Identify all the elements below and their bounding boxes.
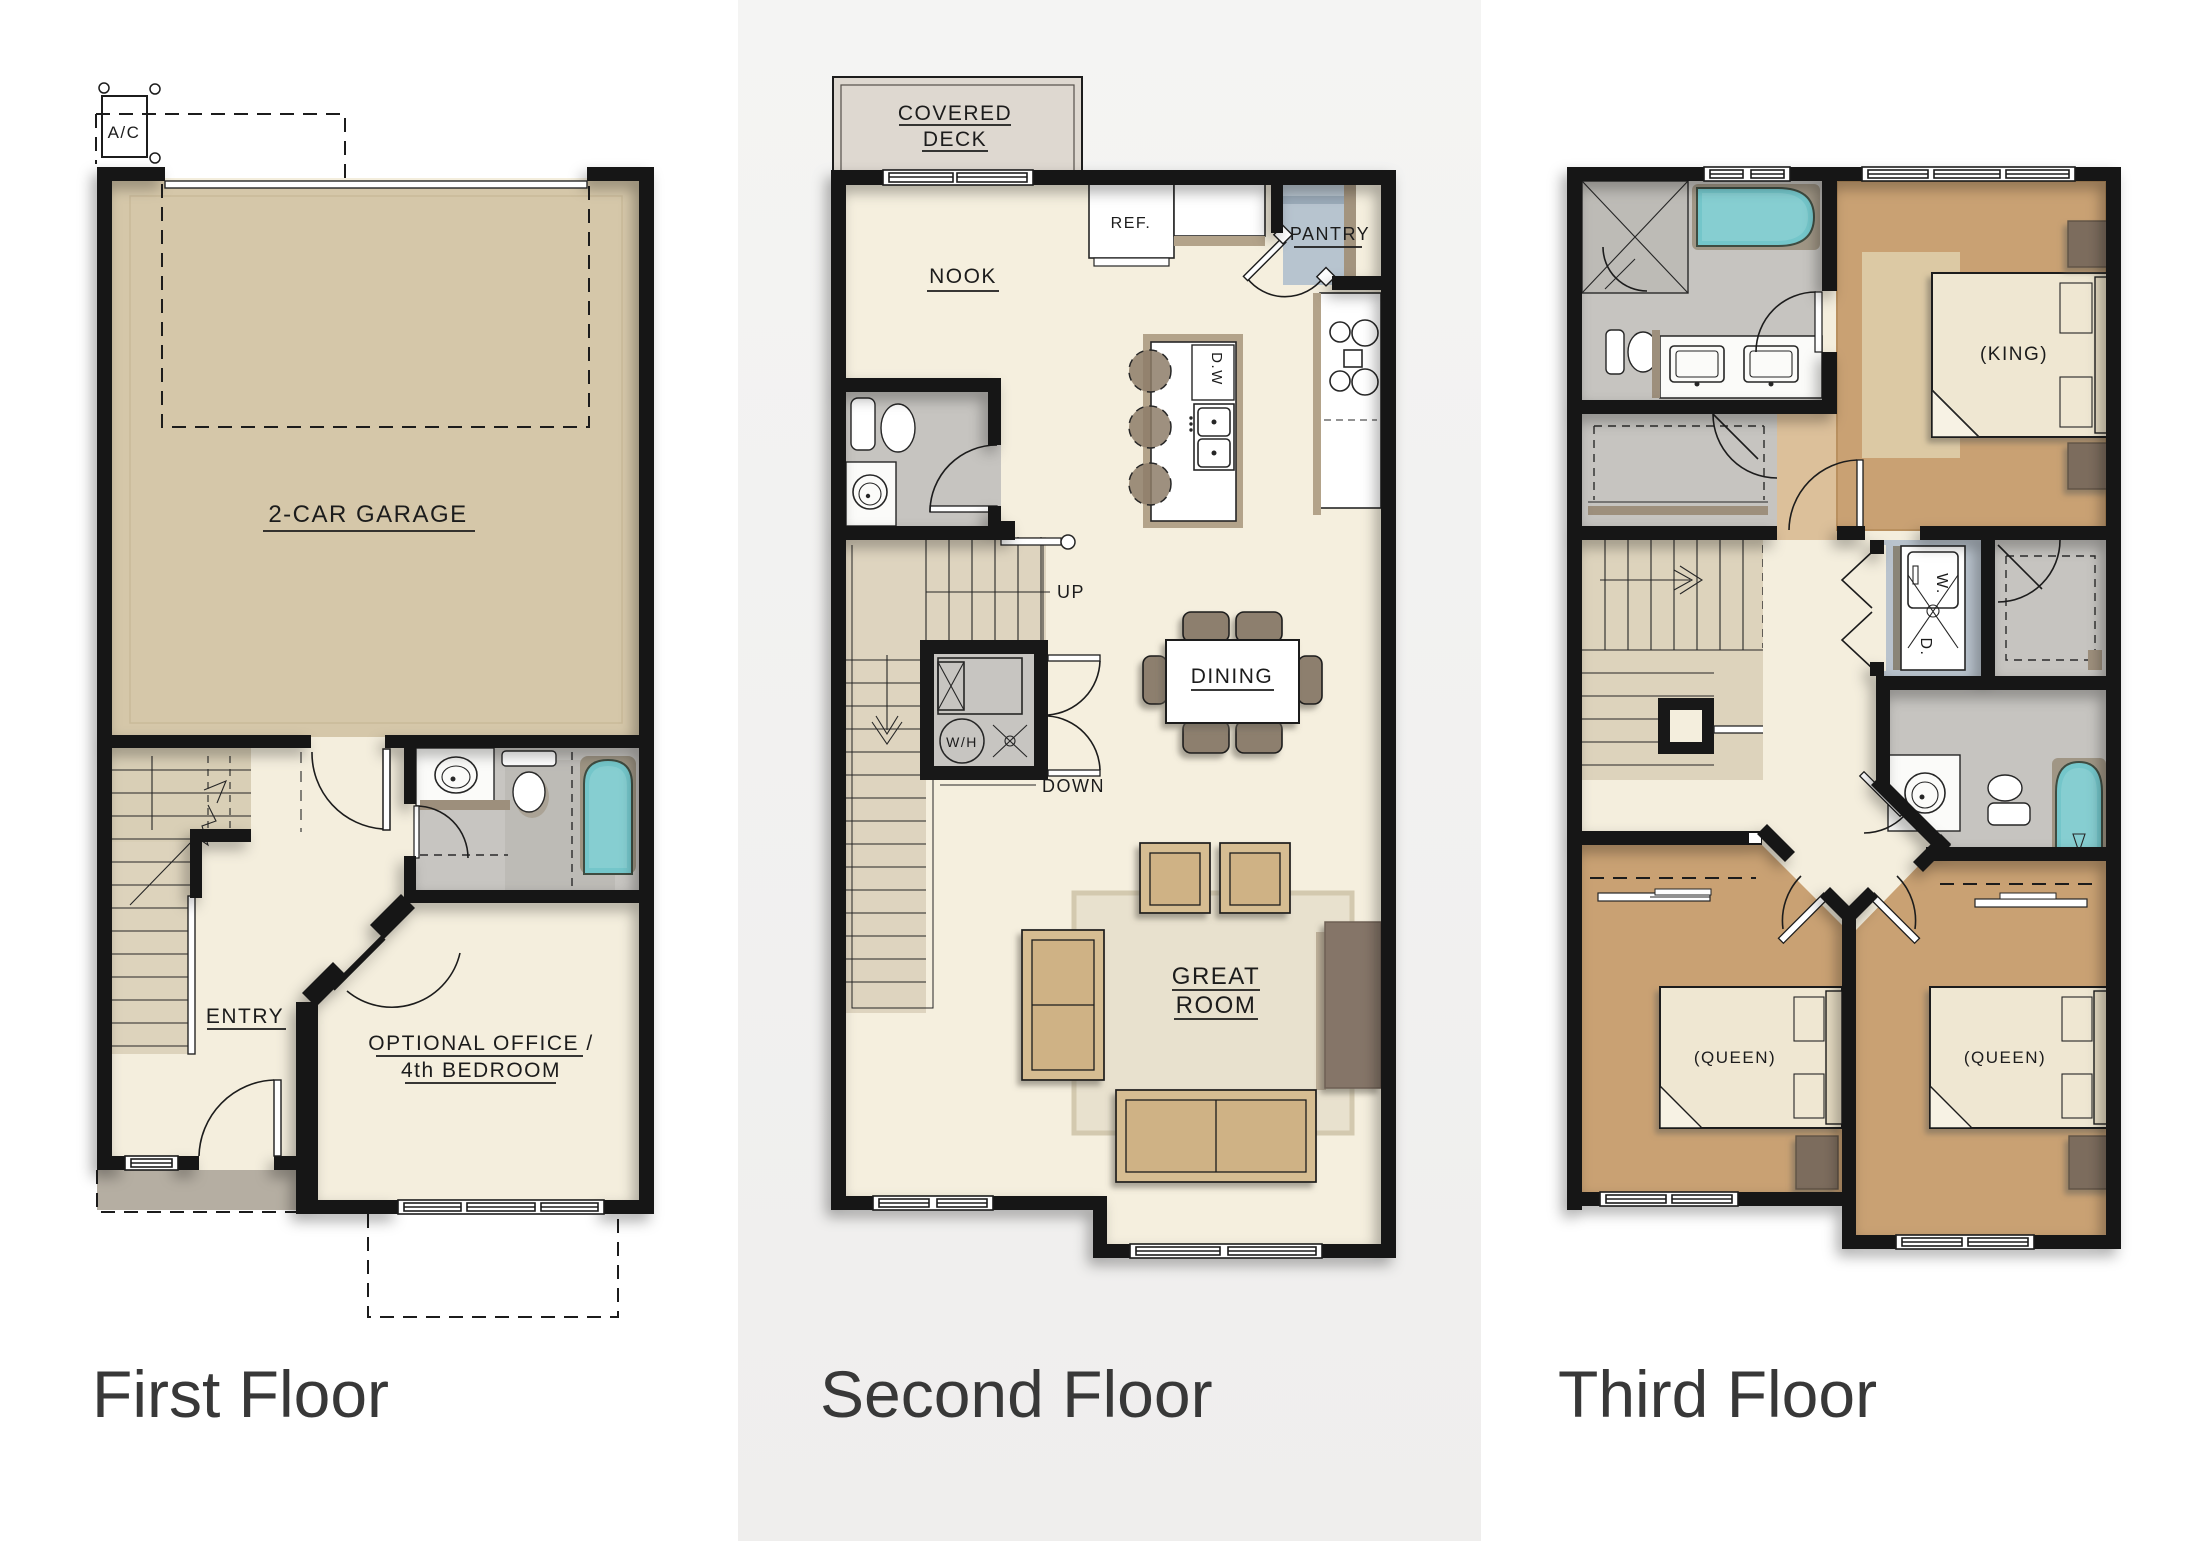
svg-text:NOOK: NOOK xyxy=(929,265,997,288)
svg-text:Third Floor: Third Floor xyxy=(1558,1357,1877,1431)
svg-text:REF.: REF. xyxy=(1111,215,1152,232)
svg-text:ROOM: ROOM xyxy=(1176,992,1257,1019)
svg-text:OPTIONAL OFFICE /: OPTIONAL OFFICE / xyxy=(368,1032,593,1055)
svg-text:DECK: DECK xyxy=(923,128,987,151)
svg-text:W/H: W/H xyxy=(946,734,978,750)
svg-text:D.W: D.W xyxy=(1208,352,1225,386)
svg-text:W.: W. xyxy=(1933,573,1950,595)
svg-text:Second Floor: Second Floor xyxy=(820,1357,1213,1431)
svg-text:ENTRY: ENTRY xyxy=(206,1005,284,1028)
svg-text:First Floor: First Floor xyxy=(92,1357,389,1431)
svg-text:DINING: DINING xyxy=(1191,665,1274,688)
svg-text:(KING): (KING) xyxy=(1980,344,2048,365)
svg-text:D.: D. xyxy=(1917,638,1934,657)
svg-text:A/C: A/C xyxy=(108,123,141,142)
svg-text:COVERED: COVERED xyxy=(898,102,1012,125)
svg-text:DOWN: DOWN xyxy=(1042,776,1105,796)
svg-text:(QUEEN): (QUEEN) xyxy=(1694,1048,1776,1067)
svg-text:PANTRY: PANTRY xyxy=(1290,224,1370,244)
svg-text:(QUEEN): (QUEEN) xyxy=(1964,1048,2046,1067)
svg-text:2-CAR GARAGE: 2-CAR GARAGE xyxy=(268,501,467,528)
svg-text:4th BEDROOM: 4th BEDROOM xyxy=(401,1059,561,1082)
svg-text:GREAT: GREAT xyxy=(1172,963,1260,990)
svg-text:UP: UP xyxy=(1057,582,1085,602)
